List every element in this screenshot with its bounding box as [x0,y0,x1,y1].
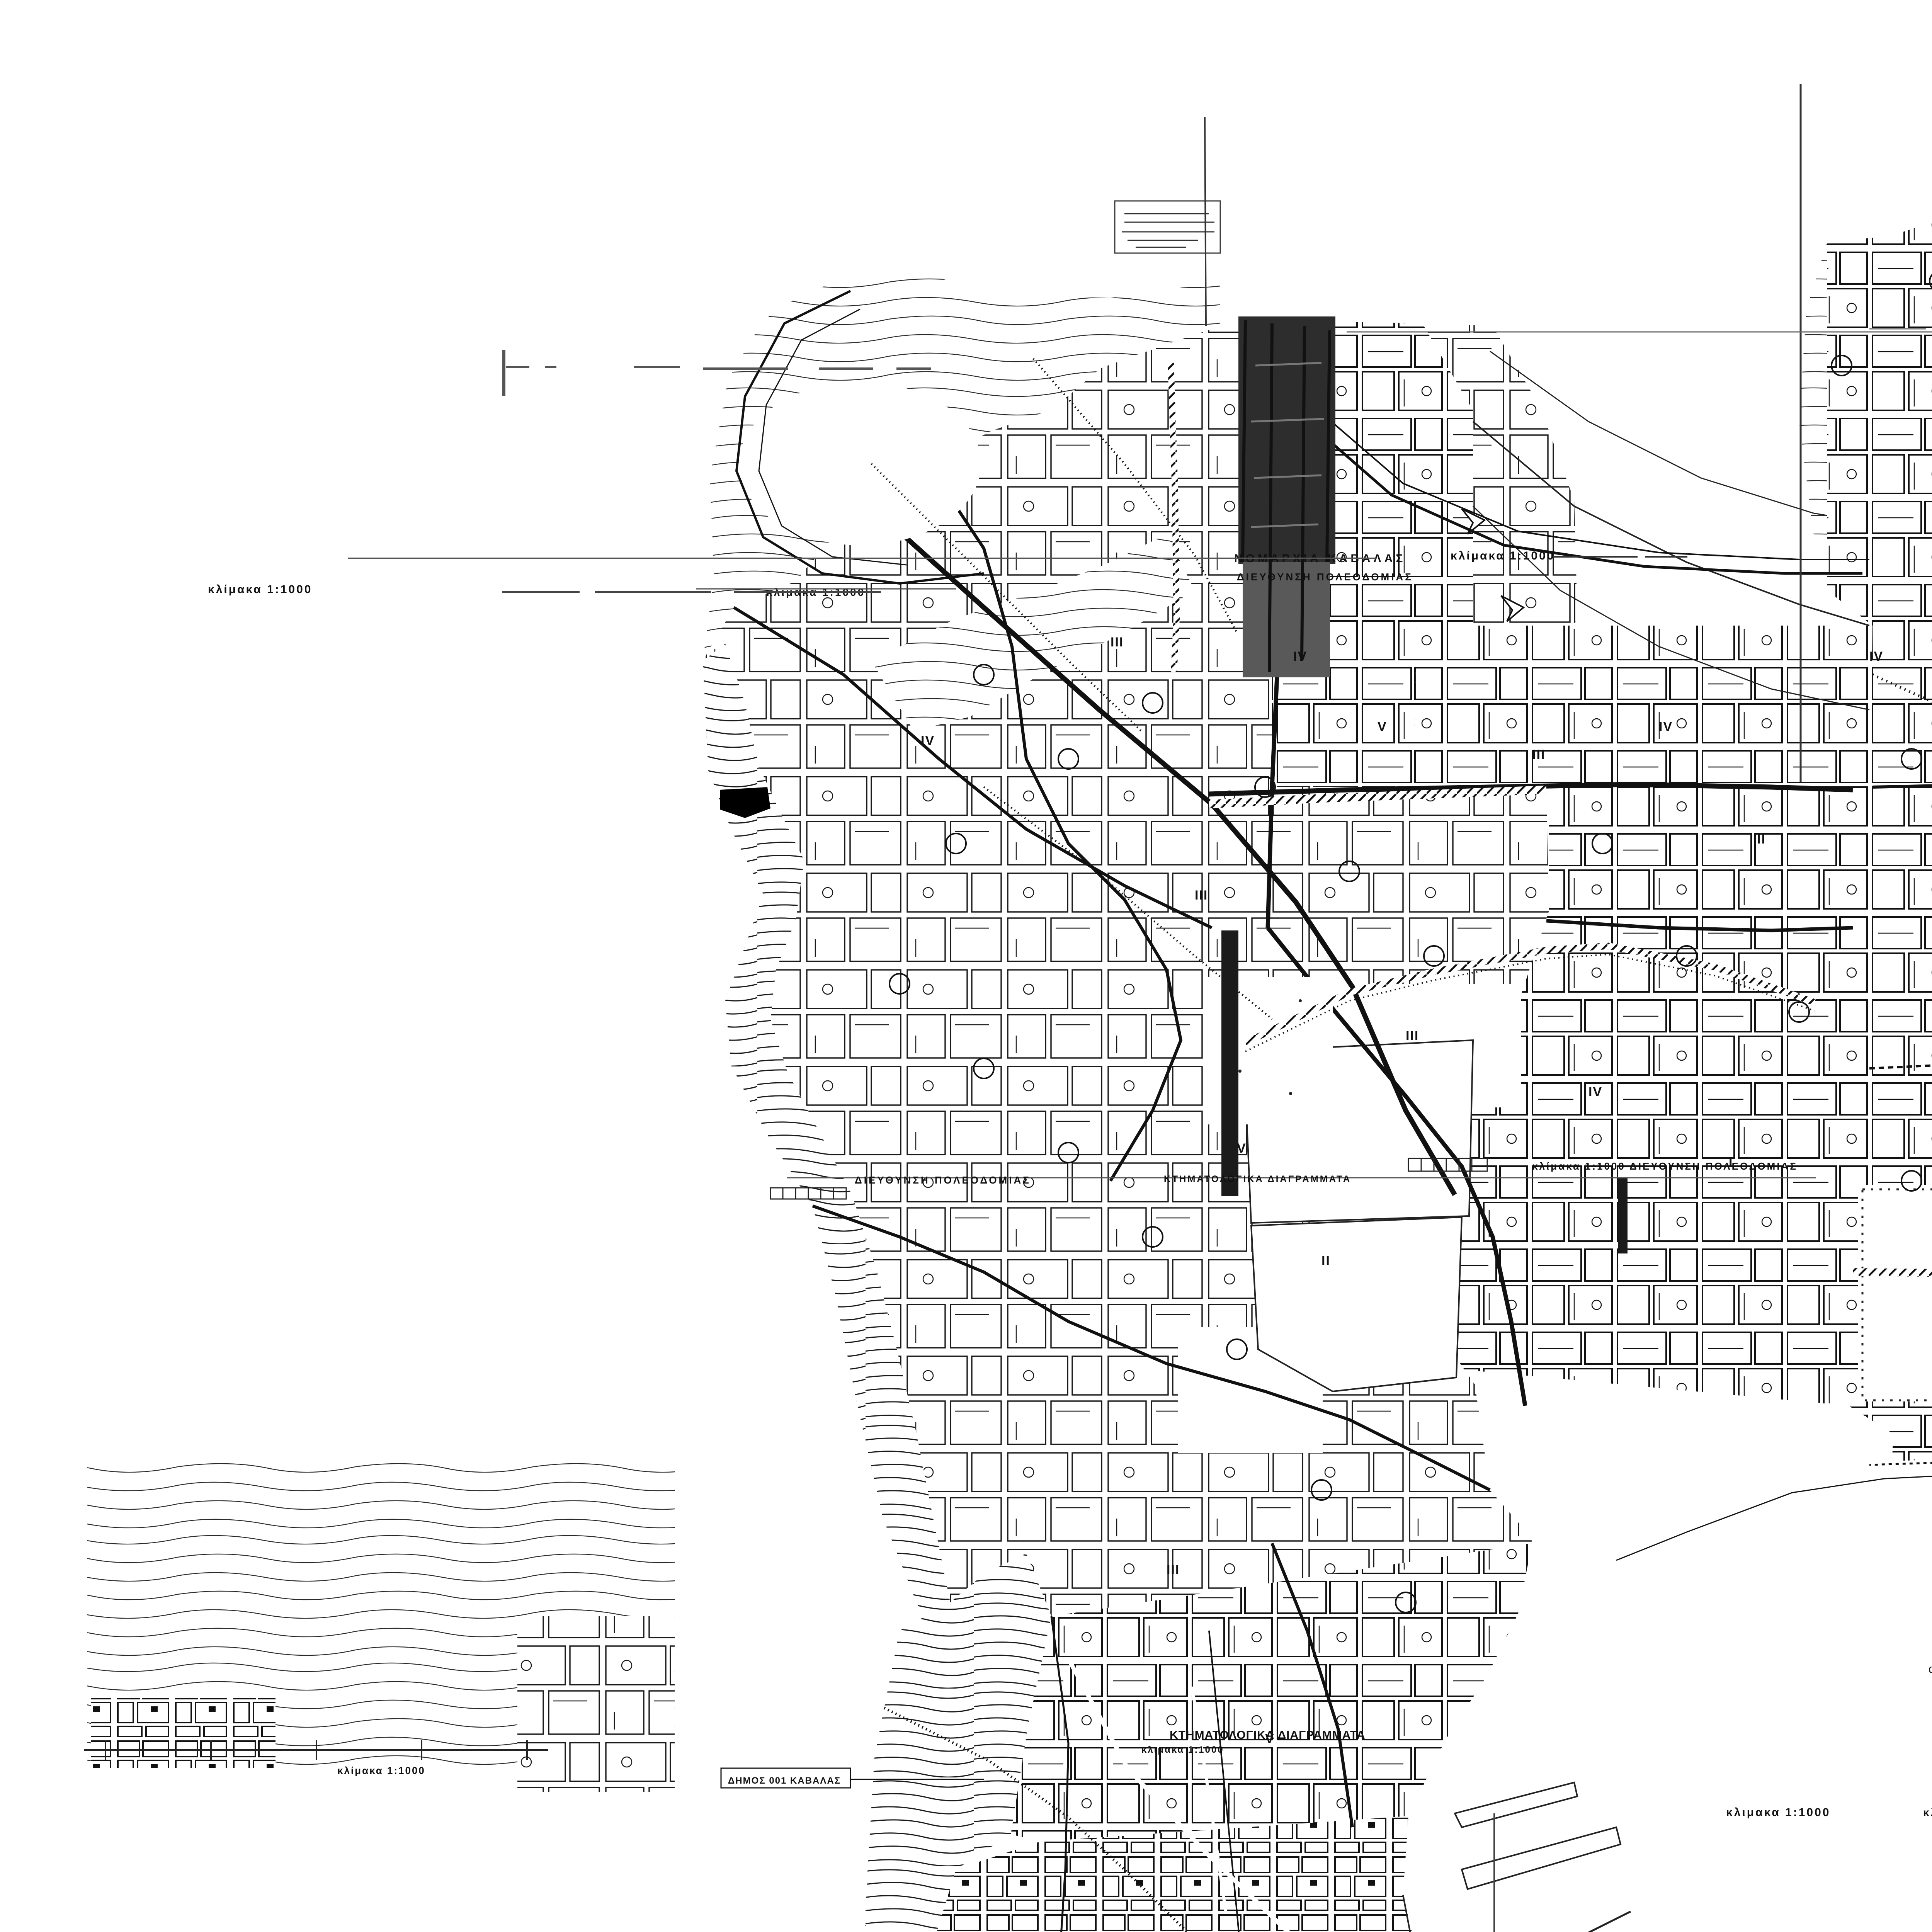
svg-text:κλίμακα 1:1000 ΔΙΕΥΘΥΝΣΗ ΠΟΛΕ: κλίμακα 1:1000 ΔΙΕΥΘΥΝΣΗ ΠΟΛΕΟΔΟΜΙΑΣ [1532,1160,1798,1172]
svg-text:κλιμακα 1:1000: κλιμακα 1:1000 [1141,1745,1224,1755]
svg-text:IV: IV [1293,649,1307,664]
svg-text:κλίμακα 1:1000: κλίμακα 1:1000 [208,583,312,596]
svg-text:III: III [1532,747,1545,762]
svg-text:κλίμακα 1:1000: κλίμακα 1:1000 [337,1765,425,1776]
svg-text:V: V [1378,719,1387,734]
svg-text:III: III [1195,888,1208,903]
svg-text:III: III [1111,635,1124,650]
svg-text:ΔΙΕΥΘΥΝΣΗ ΠΟΛΕΟΔΟΜΙΑΣ: ΔΙΕΥΘΥΝΣΗ ΠΟΛΕΟΔΟΜΙΑΣ [855,1174,1031,1186]
svg-text:I: I [1729,1155,1733,1170]
svg-text:κλιμακα 1:1000: κλιμακα 1:1000 [1726,1806,1830,1819]
svg-text:V: V [1265,1731,1275,1746]
svg-text:IV: IV [921,733,935,748]
svg-text:κλίμακα 1:1000: κλίμακα 1:1000 [1451,549,1555,562]
svg-text:ΔΙΕΥΘΥΝΣΗ ΠΟΛΕΟΔΟΜΙΑΣ: ΔΙΕΥΘΥΝΣΗ ΠΟΛΕΟΔΟΜΙΑΣ [1237,571,1413,583]
svg-text:III: III [1167,1563,1180,1577]
svg-text:ΚΤΗΜΑΤΟΛΟΓΙΚΑ ΔΙΑΓΡΑΜΜΑΤΑ: ΚΤΗΜΑΤΟΛΟΓΙΚΑ ΔΙΑΓΡΑΜΜΑΤΑ [1164,1174,1351,1184]
svg-text:II: II [1757,832,1766,847]
svg-text:κλιμακα 1:1000: κλιμακα 1:1000 [1923,1806,1932,1818]
svg-text:III: III [1406,1029,1419,1043]
svg-text:α ι γ α ι ο π ε λ α γ ο ς: α ι γ α ι ο π ε λ α γ ο ς [1929,1663,1932,1675]
svg-text:IV: IV [1869,649,1883,664]
svg-text:ΔΗΜΟΣ 001 ΚΑΒΑΛΑΣ: ΔΗΜΟΣ 001 ΚΑΒΑΛΑΣ [728,1776,841,1786]
svg-text:IV: IV [1588,1085,1602,1099]
svg-text:II: II [1321,1253,1330,1268]
svg-text:IV: IV [1659,719,1673,734]
svg-text:V: V [1237,1141,1247,1156]
